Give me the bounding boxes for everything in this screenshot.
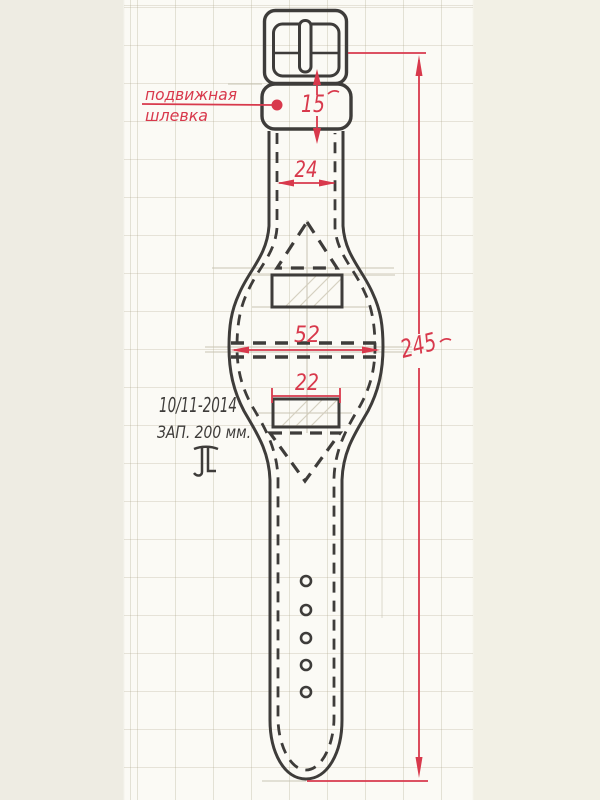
watch-strap-drawing: подвижная шлевка 15 24 52 bbox=[0, 0, 600, 800]
strap-outline bbox=[229, 131, 383, 779]
leader-line bbox=[142, 104, 272, 105]
buckle bbox=[265, 11, 347, 84]
keeper-label-line2: шлевка bbox=[145, 106, 208, 125]
flourish bbox=[440, 339, 451, 342]
leader-dot bbox=[272, 100, 283, 111]
flourish bbox=[328, 91, 339, 94]
dim-245-text: 245 bbox=[397, 327, 439, 364]
dim-total-length: 245 bbox=[307, 53, 451, 781]
graph-paper-sheet: подвижная шлевка 15 24 52 bbox=[0, 0, 600, 800]
slot-hatching bbox=[286, 276, 341, 306]
punch-hole bbox=[301, 605, 311, 615]
dim-24-text: 24 bbox=[295, 158, 318, 183]
lower-fold-triangle bbox=[270, 433, 340, 481]
keeper-label-line1: подвижная bbox=[145, 85, 237, 104]
punch-holes bbox=[301, 576, 311, 697]
dim-15-text: 15 bbox=[301, 90, 325, 118]
buckle-prong bbox=[300, 21, 312, 73]
punch-hole bbox=[301, 687, 311, 697]
dim-strap-width: 24 bbox=[277, 158, 336, 187]
handwritten-notes: 10/11-2014 ЗАП. 200 мм. bbox=[157, 393, 251, 476]
punch-hole bbox=[301, 633, 311, 643]
length-note-text: ЗАП. 200 мм. bbox=[157, 423, 251, 443]
dim-cuff-width: 52 bbox=[231, 323, 380, 354]
stitch-line bbox=[237, 133, 375, 770]
punch-hole bbox=[301, 660, 311, 670]
date-text: 10/11-2014 bbox=[159, 393, 237, 417]
dim-keeper-height: 15 bbox=[301, 69, 339, 144]
punch-hole bbox=[301, 576, 311, 586]
signature-monogram-icon bbox=[194, 447, 218, 476]
dim-22-text: 22 bbox=[295, 371, 319, 396]
dim-52-text: 52 bbox=[294, 323, 320, 348]
